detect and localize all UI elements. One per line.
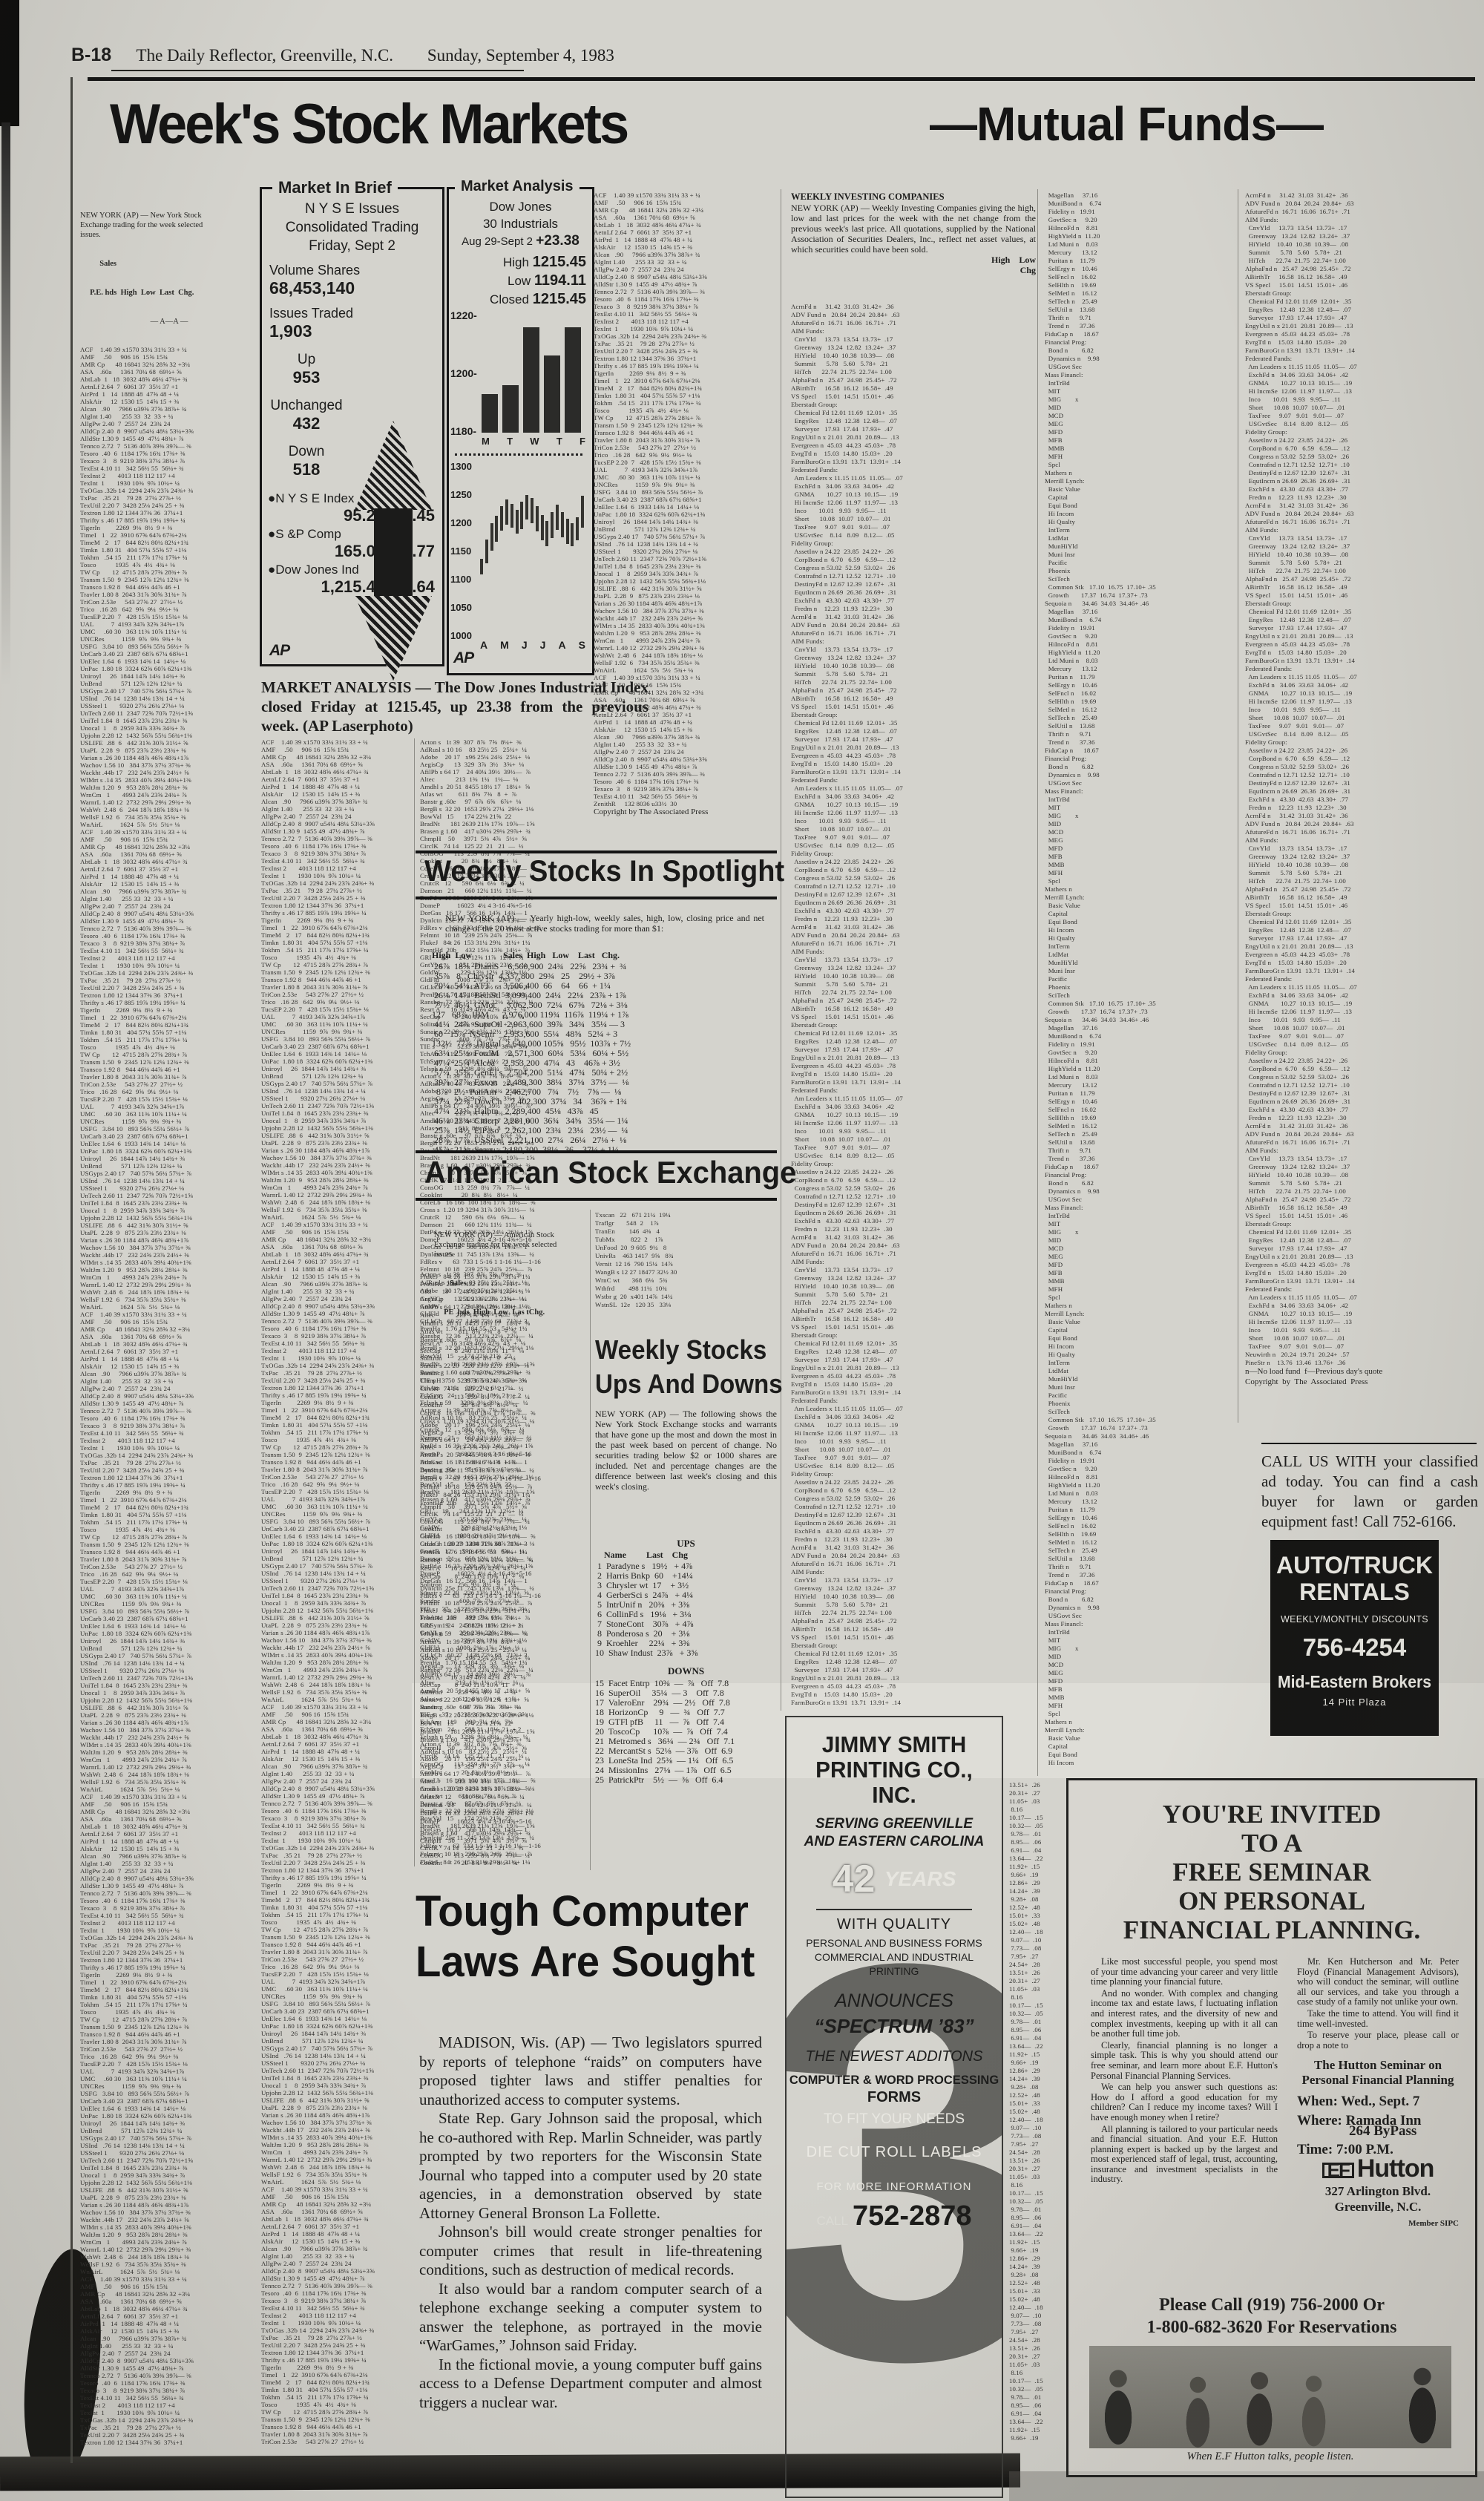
fund-row: SelUtil n 13.68 [1045,722,1235,730]
fund-row: CnvYld 13.73 13.54 13.73+ .17 [791,1576,1034,1584]
quote-row: DatPd s 16 33 2206 26⅞ 24¼ 26⅛+ 1⅝ [420,1442,588,1450]
quote-row: Upjohn 2.28 12 1432 56⅞ 55¼ 56¾+1⅛ [80,1214,258,1222]
fund-row: FiduCap n 18.67 [1045,330,1235,338]
fund-row: EngyRes 12.48 12.38 12.48— .07 [791,417,1034,425]
fund-row: Common Stk 17.10 16.75 17.10+ .35 [1045,583,1235,591]
fund-row: Puritan n 11.79 [1045,1089,1235,1098]
quote-row: AetnLf 2.64 7 6061 37 35½ 37 +1 [261,1258,411,1265]
fund-row: Am Leaders x 11.15 11.05 11.05— .07 [791,1095,1034,1103]
hilo-bar [541,515,544,540]
fund-row: 15.02+ .48 [1009,2108,1067,2116]
fund-row: 10.32— .05 [1009,2197,1067,2206]
fund-row: ExchFd n 34.06 33.63 34.06+ .42 [1245,371,1477,379]
fund-row: Inco 10.01 9.93 9.95— .11 [1245,706,1477,714]
fund-row: AcrnFd n 31.42 31.03 31.42+ .36 [791,1544,1034,1552]
quote-row: UniTel 1.84 8 1645 23⅞ 23¼ 23¾+ ⅜ [80,1199,258,1207]
fund-row: Hi IncmSe 12.06 11.97 11.97— .13 [1245,1318,1477,1326]
fund-row: 9.78— .01 [1009,2206,1067,2214]
quote-row: TW Cp 12 4715 28⅞ 27⅝ 28¾+ ⅞ [261,961,411,968]
fund-row: 7.95+ .27 [1009,1953,1067,1961]
left-page-rule [70,77,73,2463]
quote-row: Amdhl s 20 51 8455 18½ 17 18¼+ ⅝ [420,1320,588,1328]
hutton-seminar-ad: YOU'RE INVITEDTO AFREE SEMINARON PERSONA… [1066,1778,1477,2477]
quote-row: Travler 1.80 8 2043 31⅞ 30⅝ 31¾+ ⅞ [594,436,777,444]
fund-row: CorpBond n 6.70 6.59 6.59— .12 [791,866,1034,874]
week-change: +23.38 [536,233,580,249]
quote-row: Wackht .44b 17 232 24⅝ 23⅞ 24½+ ⅝ [261,1161,411,1169]
spectrum-83: “SPECTRUM ’83” [787,2015,1002,2038]
fund-row: Hi IncmSe 12.06 11.97 11.97— .13 [1245,1008,1477,1016]
fund-row: 14.24+ .39 [1009,2075,1067,2083]
quote-row: TxPac .35 21 79 28 27¼ 27⅞+ ½ [261,887,411,894]
quote-row: TxOGas .32b 14 2294 24⅝ 23⅞ 24⅜+ ⅜ [80,487,258,494]
fund-row: MuniBond n 6.74 [1045,1449,1235,1457]
fund-row: SelMetl n 16.12 [1045,289,1235,298]
quote-row: TexEst 4.10 11 342 56½ 55 56¼+ ¾ [80,947,258,954]
y-tick: 1200- [450,367,477,379]
fund-row: Growth 17.37 16.74 17.37+ .73 [1045,1424,1235,1432]
fund-row: 15.01+ .33 [1009,2100,1067,2108]
quote-row: AdRusl s 10 16 83 25½ 25 25¼+ ¼ [420,1646,588,1654]
fund-row: Trend n 37.36 [1045,1571,1235,1579]
quote-row: TxPac .35 21 79 28 27¼ 27⅞+ ½ [261,1852,411,1859]
quote-row: UtaPL 2.28 9 875 23⅞ 23½ 23¾+ ⅛ [80,1711,258,1719]
quote-row: TimeM 2 17 844 82½ 80¼ 82¼+1¾ [261,2379,411,2386]
fund-row: FiduCap n 18.67 [1045,1579,1235,1587]
fund-row: HiYield 10.40 10.38 10.39— .08 [791,972,1034,980]
quote-row: Wackht .44b 17 232 24⅝ 23⅞ 24½+ ⅝ [594,614,777,622]
fund-row: Contrafnd n 12.71 12.52 12.71+ .10 [791,1193,1034,1201]
quote-row: AetnLf 2.64 7 6061 37 35½ 37 +1 [80,2312,258,2320]
fund-row: AIM Funds: [1245,1147,1477,1155]
quote-row: USFG 3.84 10 893 56⅝ 55¼ 56½+ ⅞ [261,1518,411,1525]
quote-row: Wackht .44b 17 232 24⅝ 23⅞ 24½+ ⅝ [80,1734,258,1741]
quote-row: Telsph n 59 3298 9¾ d8¼ 9⅜— ¼ [420,1630,588,1638]
quote-row: Timkn 1.80 31 404 57¼ 55⅝ 57 +1⅛ [261,1904,411,1911]
fund-row: AfutureFd n 16.71 16.06 16.71+ .71 [1245,208,1477,216]
fund-row: Evergreen n 45.03 44.23 45.03+ .78 [1245,330,1477,338]
quote-row: Tennco 2.72 7 5136 40⅞ 39⅜ 39⅞— ⅜ [261,1317,411,1325]
fund-row: Eberstadt Group: [791,1021,1034,1029]
mf-intro-text: NEW YORK (AP) — Weekly Investing Compani… [791,203,1036,255]
fund-row: HiYield 10.40 10.38 10.39— .08 [1245,1171,1477,1179]
quote-row: UniTel 1.84 8 1645 23⅞ 23¼ 23¾+ ⅜ [261,1592,411,1599]
fund-row: Fredm n 12.23 11.93 12.23+ .30 [1245,1114,1477,1122]
fund-row: VS Specl 15.01 14.51 15.01+ .46 [791,1633,1034,1642]
ad-divider [816,1909,972,1910]
quote-row: Transm 1.50 9 2345 12⅞ 12¼ 12¾+ ⅜ [261,1451,411,1458]
quote-row: WshWt 2.48 6 244 18⅞ 18⅝ 18¾+ ⅛ [261,2163,411,2171]
quote-row: AirPrd 1 14 1888 48 47⅝ 48 + ¼ [594,718,777,726]
fund-row: VS Specl 15.01 14.51 15.01+ .46 [1245,281,1477,289]
quote-row: AMF .50 906 16 15⅝ 15¾ [80,353,258,361]
quote-row: WshWt 2.48 6 244 18⅞ 18⅝ 18¾+ ⅛ [80,1771,258,1778]
quote-row: AlldStr 1.30 9 1455 49 47½ 48¾+ ⅞ [594,281,777,288]
ups-label: UPS [595,1538,777,1549]
quote-row: Unocal 1 8 2959 34⅞ 33⅝ 34¾+ ⅞ [261,2082,411,2089]
quote-row: USLIFE .88 6 442 31⅝ 30⅞ 31½+ ⅝ [594,585,777,592]
quote-row: USInd .76 14 1238 14⅛ 13¾ 14 + ¼ [80,2142,258,2149]
quote-row: Damson 21 660 12¼ 11½ 11¾— ¼ [420,1434,588,1442]
quote-row: Textron 1.80 12 1344 37⅜ 36 37¼+1 [261,1384,411,1392]
quote-row: Tosco 1935 4⅞ 4½ 4¾+ ⅛ [80,1043,258,1051]
fund-row: Hi IncmSe 12.06 11.97 11.97— .13 [791,499,1034,507]
quote-row: BradNt 181 2639 21⅜ 17⅝ 19⅞— 1⅝ [420,820,588,827]
masthead: B-18 The Daily Reflector, Greenville, N.… [71,45,614,66]
quote-row: Transm 1.50 9 2345 12⅞ 12¼ 12¾+ ⅜ [80,1541,258,1548]
quote-row: AlldCp 2.40 8 9907 u54¼ 48¼ 53¼+3⅝ [261,2267,411,2275]
quote-row: Tennco 2.72 7 5136 40⅞ 39⅜ 39⅞— ⅜ [261,1800,411,1807]
quote-row: Trico .16 28 642 9⅝ 9¼ 9½+ ⅛ [261,1963,411,1970]
quote-row: Tokhm .54 15 211 17⅞ 17¼ 17⅝+ ¼ [80,1036,258,1043]
fund-row: CorpBond n 6.70 6.59 6.59— .12 [1245,755,1477,763]
fund-row: IntTrBd [1045,796,1235,804]
fund-row: ExchFd n 43.30 42.63 43.30+ .77 [791,1217,1034,1225]
fund-row: USGvtSec 8.14 8.09 8.12— .05 [791,842,1034,850]
quote-row: WshWt 2.48 6 244 18⅞ 18⅝ 18¾+ ⅛ [80,2253,258,2261]
fund-row: Inco 10.01 9.93 9.95— .11 [791,1127,1034,1135]
fund-row: ADV Fund n 20.84 20.24 20.84+ .63 [791,621,1034,629]
quote-row: TexEst 4.10 11 342 56½ 55 56¼+ ¾ [261,1822,411,1829]
fund-row: HiYield 10.40 10.38 10.39— .08 [791,1593,1034,1601]
fund-row: Financial Prog: [1045,1587,1235,1596]
fund-row: Surveyor 17.93 17.44 17.93+ .47 [791,425,1034,433]
quote-row: AegisCp 13 329 3⅞ 3½ 3⅝+ ⅛ [420,1662,588,1671]
quote-row: Travler 1.80 8 2043 31⅞ 30⅝ 31¾+ ⅞ [80,2038,258,2045]
high-low-close: High 1215.45 Low 1194.11 Closed 1215.45 [490,253,586,309]
quote-row: AirPrd 1 14 1888 48 47⅝ 48 + ¼ [261,1265,411,1273]
quote-row: Wachov 1.56 10 384 37⅞ 37¼ 37¾+ ⅜ [80,1244,258,1251]
fund-row: CnvYld 13.73 13.54 13.73+ .17 [1245,845,1477,853]
fund-row: Surveyor 17.93 17.44 17.93+ .47 [791,1666,1034,1674]
quote-row: WrnCm 1 4993 24⅞ 23⅝ 24¾+ ⅞ [261,2148,411,2156]
fund-row: Chemical Fd 12.01 11.69 12.01+ .35 [791,1029,1034,1038]
weekday-labels: MTWTF [482,436,585,447]
fund-row: Surveyor 17.93 17.44 17.93+ .47 [1245,314,1477,322]
fund-row: 10.32— .05 [1009,2385,1067,2393]
quote-row: AetnLf 2.64 7 6061 37 35½ 37 +1 [261,776,411,783]
quote-row: Tosco 1935 4⅞ 4½ 4¾+ ⅛ [80,2008,258,2016]
quote-row: Brasen g 1.60 417 u30⅛ 29⅛ 29⅞+ ¾ [420,1736,588,1744]
quote-row: UnPac 1.80 18 3324 62⅝ 60⅞ 62¼+1⅜ [80,665,258,672]
quote-row: Txscan 22 671 21¼ 19¼ [595,1211,777,1219]
fund-row: LtdMat [1045,534,1235,543]
fund-row: AIM Funds: [791,327,1034,335]
quote-row: AirPrd 1 14 1888 48 47⅝ 48 + ¼ [594,236,777,243]
fund-row: Muni Insr [1045,551,1235,559]
quote-row: Banstr g .60e 97 6⅞ 6⅝ 6⅞+ ⅛ [420,1703,588,1711]
fund-row: Greenway 13.24 12.82 13.24+ .37 [1245,1163,1477,1171]
fund-row: Neuwirth n 20.24 19.71 20.24+ .57 [1245,1351,1477,1359]
quote-row: TubMx 822 2 1⅞ [595,1236,777,1244]
ap-logo: AP [269,642,289,660]
auto-truck-rentals-ad: AUTO/TRUCK RENTALS WEEKLY/MONTHLY DISCOU… [1270,1540,1439,1736]
quote-row: ASA .60a 1361 70¼ 68 69½+ ⅝ [80,850,258,858]
brief-stats: Volume Shares 68,453,140 Issues Traded 1… [262,263,442,341]
fund-row: MFH [1045,1702,1235,1710]
fund-row: EngyRes 12.48 12.38 12.48— .07 [1245,926,1477,934]
quote-row: AlgInt 1.40 255 33 32 33 + ¼ [261,2252,411,2260]
quote-row: Acton s 1t 39 307 8⅞ 7⅝ 8¼+ ⅜ [420,738,588,746]
quote-row: AirPrd 1 14 1888 48 47⅝ 48 + ¼ [80,390,258,398]
bar [502,385,519,433]
fund-row: MunHiYld [1045,543,1235,551]
quote-row: USSteel 1 9320 27¼ 26¼ 27⅛+ ⅛ [594,548,777,555]
fund-row: ABirthTr 16.58 16.12 16.58+ .49 [1245,583,1477,591]
fund-row: Puritan n 11.79 [1045,257,1235,265]
quote-row: Transm 1.50 9 2345 12⅞ 12¼ 12¾+ ⅜ [80,2023,258,2030]
fund-row: 9.28+ .08 [1009,1895,1067,1904]
fund-row: MCD [1045,412,1235,420]
fund-row: Inco 10.01 9.93 9.95— .11 [1245,1326,1477,1334]
fund-row: SelHlth n 19.69 [1045,698,1235,706]
quote-row: TexEst 4.10 11 342 56½ 55 56¼+ ¾ [261,2304,411,2312]
quote-row: Wackht .44b 17 232 24⅝ 23⅞ 24½+ ⅝ [80,2216,258,2223]
quote-row: UnCarb 3.40 23 2387 68⅞ 67¼ 68⅝+1 [261,1525,411,1533]
quote-row: AMF .50 906 16 15⅝ 15¾ [261,2193,411,2200]
fund-row: ABirthTr 16.58 16.12 16.58+ .49 [791,695,1034,703]
quote-row: ConsOG 113 259 8¼ 7⅞ 7⅞— ¼ [420,1393,588,1401]
quote-row: TexEst 4.10 11 342 56½ 55 56¼+ ¾ [594,793,777,800]
fund-row: EngyRes 12.48 12.38 12.48— .07 [791,1658,1034,1666]
fund-row: DestinyFd n 12.67 12.39 12.67+ .31 [791,1511,1034,1519]
quote-row: WarnrL 1.40 12 2732 29⅞ 29¼ 29¾+ ⅜ [80,1281,258,1288]
fund-row: AcrnFd n 31.42 31.03 31.42+ .36 [1245,502,1477,510]
quote-row: Brasen g 1.60 417 u30⅛ 29⅛ 29⅞+ ¾ [420,827,588,835]
quote-row: USSteel 1 9320 27¼ 26¼ 27⅛+ ⅛ [80,1184,258,1192]
fund-row: Chemical Fd 12.01 11.69 12.01+ .35 [791,1650,1034,1658]
quote-row: USInd .76 14 1238 14⅛ 13¾ 14 + ¼ [261,2052,411,2059]
fund-row: Magellan 37.16 [1045,1440,1235,1449]
fund-row: GNMA 10.27 10.13 10.15— .19 [791,801,1034,809]
fund-row: EvrgTtl n 15.03 14.80 15.03+ .20 [791,1691,1034,1699]
quote-row: WnAirL 1624 5⅞ 5½ 5¾+ ⅛ [261,2178,411,2186]
fund-row: 8.95— .06 [1009,2026,1067,2034]
fund-row: 9.78— .01 [1009,2018,1067,2026]
quote-row: Timkn 1.80 31 404 57¼ 55⅝ 57 +1⅛ [80,1511,258,1518]
fund-row: 13.64— .22 [1009,2418,1067,2426]
quote-row: ACF 1.40 39 x1570 33¼ 31¼ 33 + ¼ [594,674,777,681]
fund-row: Basic Value [1045,485,1235,494]
quote-row: TexInst 2 4013 118 112 117 +4 [594,318,777,325]
fund-row: 15.02+ .48 [1009,2295,1067,2304]
fund-row: AlphaFnd n 25.47 24.98 25.45+ .72 [1245,265,1477,273]
quote-row: Timkn 1.80 31 404 57¼ 55⅝ 57 +1⅛ [261,2386,411,2393]
quote-row: AdRusl s 10 16 83 25½ 25 25¼+ ¼ [420,746,588,753]
quote-row: Travler 1.80 8 2043 31⅞ 30⅝ 31¾+ ⅞ [261,1948,411,1956]
fund-row: 9.78— .01 [1009,2393,1067,2402]
quote-row: Texaco 3 8 9219 38⅜ 37¼ 38¼+ ⅞ [261,1815,411,1822]
quote-row: TimeM 2 17 844 82½ 80¼ 82¼+1¾ [80,1986,258,1993]
quote-row: Timkn 1.80 31 404 57¼ 55⅝ 57 +1⅛ [80,1029,258,1036]
fund-row: CorpBond n 6.70 6.59 6.59— .12 [1245,445,1477,453]
quote-row: SecCap 8 240 11¼ 10⅝ 11 + ⅛ [420,1573,588,1581]
fund-row: AcrnFd n 31.42 31.03 31.42+ .36 [1245,191,1477,200]
quote-row: Wackht .44b 17 232 24⅝ 23⅞ 24½+ ⅝ [80,769,258,776]
fund-row: SelHlth n 19.69 [1045,281,1235,289]
quote-row: AlskAir 12 1530 15 14⅝ 15 + ⅜ [261,2238,411,2245]
fund-row: Ltd Muni n 8.03 [1045,657,1235,665]
fund-row: Merrill Lynch: [1045,477,1235,485]
fund-row: HiTch 22.74 21.75 22.74+ 1.00 [791,989,1034,997]
quote-row: BowVal 15 174 22⅛ 21⅝ 22 [420,1352,588,1360]
ad-line: WITH QUALITY [787,1916,1002,1933]
fund-row: Fidelity Group: [1245,738,1477,747]
bar [565,327,581,433]
fund-row: Hi Incom [1045,926,1235,934]
quote-row: UNCRes 1159 9⅞ 9⅜ 9¾+ ⅜ [80,2082,258,2090]
banner-rule [416,1150,777,1153]
fund-row: MFH [1045,1285,1235,1294]
fund-row: Financial Prog: [1045,755,1235,763]
quote-row: Transm 1.50 9 2345 12⅞ 12¼ 12¾+ ⅜ [594,422,777,429]
fund-row: ExchFd n 34.06 33.63 34.06+ .42 [791,1413,1034,1421]
quote-row: AirPrd 1 14 1888 48 47⅝ 48 + ¼ [261,783,411,790]
quote-row: AllgPw 2.40 7 2557 24 23¾ 24 [261,1777,411,1785]
fund-row: AcrnFd n 31.42 31.03 31.42+ .36 [791,303,1034,311]
y-tick: 1300 [450,461,472,472]
fund-row: Growth 17.37 16.74 17.37+ .73 [1045,591,1235,600]
quote-row: AetnLf 2.64 7 6061 37 35½ 37 +1 [80,1348,258,1355]
fund-row: USGovt Sec [1045,779,1235,787]
fund-row: 8.16 [1009,1993,1067,2002]
quote-row: TimeI 1 22 3910 67⅝ 64⅞ 67⅜+2⅛ [80,1979,258,1986]
fund-row: EvrgTtl n 15.03 14.80 15.03+ .20 [1245,338,1477,347]
fund-row: Ltd Muni n 8.03 [1045,1073,1235,1081]
fund-row: Fidelity Group: [791,850,1034,858]
fund-row: Basic Value [1045,1318,1235,1326]
quote-row: USFG 3.84 10 893 56⅝ 55¼ 56½+ ⅞ [594,488,777,496]
jimmy-smith-printing-ad: 3 JIMMY SMITH PRINTING CO., INC. SERVING… [785,1716,1003,2498]
quote-row: USLIFE .88 6 442 31⅝ 30⅞ 31½+ ⅝ [80,1704,258,1711]
quote-row: Unocal 1 8 2959 34⅞ 33⅝ 34¾+ ⅞ [80,2171,258,2179]
quote-row: Unocal 1 8 2959 34⅞ 33⅝ 34¾+ ⅞ [261,1117,411,1124]
fund-row: Merrill Lynch: [1045,1310,1235,1318]
quote-row: AMF .50 906 16 15⅝ 15¾ [261,746,411,753]
quote-row: Thrifty s .46 17 885 19⅞ 19¼ 19⅝+ ¼ [261,909,411,917]
quote-row: AMF .50 906 16 15⅝ 15¾ [80,1318,258,1325]
quote-row: UAL 7 4193 34⅞ 32⅝ 34⅝+1⅞ [80,1103,258,1110]
fund-row: MMB [1045,1694,1235,1702]
quote-row: TimeI 1 22 3910 67⅝ 64⅞ 67⅜+2⅛ [80,1496,258,1504]
fund-row: Greenway 13.24 12.82 13.24+ .37 [791,654,1034,662]
quote-row: Trico .16 28 642 9⅝ 9¼ 9½+ ⅛ [80,1570,258,1578]
seminar-when: When: Wed., Sept. 7 [1297,2097,1459,2107]
quote-row: TranEn 146 4⅜ 4 [595,1227,777,1236]
fund-row: Short 10.08 10.07 10.07— .01 [1245,714,1477,722]
quote-row: ASA .60a 1361 70¼ 68 69½+ ⅝ [261,761,411,768]
quote-row: USGyps 2.40 17 740 57⅜ 56¼ 57¼+ ⅞ [261,1080,411,1087]
quote-row: TxOGas .32b 14 2294 24⅝ 23⅞ 24⅜+ ⅜ [261,1362,411,1369]
fund-row: MIT [1045,804,1235,812]
hilo-bar [520,502,523,529]
quote-row: Ransbg 72 36 513 22¾ 22⅛ 22¼— ¼ [420,1556,588,1564]
fund-row: Evergreen n 45.03 44.23 45.03+ .78 [791,1682,1034,1691]
fund-row: USGovt Sec [1045,1612,1235,1620]
fund-row: Eberstadt Group: [1245,289,1477,298]
quote-row: TxOGas .32b 14 2294 24⅝ 23⅞ 24⅜+ ⅜ [261,1844,411,1852]
quote-row: TxOGas .32b 14 2294 24⅝ 23⅞ 24⅜+ ⅜ [261,2327,411,2334]
quote-row: UnPac 1.80 18 3324 62⅝ 60⅞ 62¼+1⅜ [80,1147,258,1155]
fund-row: Phoenix [1045,1400,1235,1408]
fund-row: Summit 5.78 5.60 5.78+ .21 [1245,1179,1477,1187]
quote-row: Alcan .90 7966 u39⅝ 37⅝ 38⅞+ ¾ [261,2245,411,2252]
quote-row: USGyps 2.40 17 740 57⅜ 56¼ 57¼+ ⅞ [594,533,777,540]
fund-row: HiYield 10.40 10.38 10.39— .08 [791,662,1034,670]
fund-row: Equi Bond [1045,502,1235,510]
fund-row: Evergreen n 45.03 44.23 45.03+ .78 [791,442,1034,450]
quote-row: Thrifty s .46 17 885 19⅞ 19¼ 19⅝+ ¼ [80,1964,258,1971]
quote-row: AlskAir 12 1530 15 14⅝ 15 + ⅜ [80,880,258,888]
fund-row: Federated Funds: [791,466,1034,474]
quote-row: Wachov 1.56 10 384 37⅞ 37¼ 37¾+ ⅜ [80,2209,258,2216]
fund-row: Am Leaders x 11.15 11.05 11.05— .07 [1245,1294,1477,1302]
quote-row: Tosco 1935 4⅞ 4½ 4¾+ ⅛ [80,1526,258,1533]
fund-row: HiYield 10.40 10.38 10.39— .08 [1245,861,1477,869]
quote-row: AirPrd 1 14 1888 48 47⅝ 48 + ¼ [80,1838,258,1845]
fund-row: AssetInv n 24.22 23.85 24.22+ .26 [1245,1057,1477,1065]
quote-row: TW Cp 12 4715 28⅞ 27⅝ 28¾+ ⅞ [80,1051,258,1058]
fund-row: Evergreen n 45.03 44.23 45.03+ .78 [791,1062,1034,1070]
quote-row: TexInst 2 4013 118 112 117 +4 [261,1829,411,1837]
fund-row: SciTech [1045,1408,1235,1416]
fund-row: USGvtSec 8.14 8.09 8.12— .05 [791,1462,1034,1470]
fund-row: Summit 5.78 5.60 5.78+ .21 [791,980,1034,989]
quote-row: TimeI 1 22 3910 67⅝ 64⅞ 67⅜+2⅛ [261,1889,411,1896]
fund-row: Bond n 6.82 [1045,763,1235,771]
quote-row: Upjohn 2.28 12 1432 56⅞ 55¼ 56¾+1⅛ [261,2089,411,2097]
fund-row: Evergreen n 45.03 44.23 45.03+ .78 [1245,951,1477,959]
quote-row: WellsF 1.92 6 734 35⅞ 35¼ 35¾+ ⅜ [261,1206,411,1213]
quote-row: CirclK 74 14 125 22 21 21 — ½ [420,1385,588,1393]
quote-row: AMR Cp 48 16841 32¼ 28⅝ 32 +3¼ [80,361,258,368]
dotted-divider [455,453,582,456]
fund-row: MFD [1045,1677,1235,1685]
fund-row: AIM Funds: [1245,216,1477,224]
quote-row: Trico .16 28 642 9⅝ 9¼ 9½+ ⅛ [80,606,258,613]
fund-row: GovtSec n 9.20 [1045,216,1235,224]
quote-row: WaltJm 1.20 9 953 28⅞ 28¼ 28¾+ ⅜ [261,2141,411,2148]
quote-row: Varian s .26 30 1184 48⅞ 46⅝ 48¾+1⅞ [261,1629,411,1636]
fund-row: 10.17— .15 [1009,1814,1067,1822]
fund-row: Evergreen n 45.03 44.23 45.03+ .78 [791,752,1034,760]
quote-row: AMR Cp 48 16841 32¼ 28⅝ 32 +3¼ [80,843,258,850]
fund-row: Pacific [1045,1392,1235,1400]
fund-row: Fidelity n 19.91 [1045,1457,1235,1465]
quote-row: AlldStr 1.30 9 1455 49 47½ 48¾+ ⅞ [80,2364,258,2372]
fund-row: MFD [1045,1261,1235,1269]
quote-row: Dynlctn 25e 11 745 13⅞ 13¼ 13⅝— ¼ [420,1466,588,1475]
quote-row: GRI 19 243 12⅝ 11⅞ 12¼+ ¼ [420,1507,588,1515]
classified-rule [1261,1443,1477,1444]
quote-row: Trico .16 28 642 9⅝ 9¼ 9½+ ⅛ [261,998,411,1006]
quote-row: AMF .50 906 16 15⅝ 15¾ [261,1711,411,1718]
fund-row: DestinyFd n 12.67 12.39 12.67+ .31 [1245,469,1477,477]
fund-row: EqutIncm n 26.69 26.36 26.69+ .31 [1245,477,1477,485]
fund-row: HiIncoFd n 8.81 [1045,640,1235,649]
fund-row: 24.54+ .28 [1009,2148,1067,2157]
fund-row: 8.16 [1009,2369,1067,2377]
quote-row: Textron 1.80 12 1344 37⅜ 36 37¼+1 [261,2349,411,2356]
six-month-hilo-chart [480,465,585,636]
quote-row: Upjohn 2.28 12 1432 56⅞ 55¼ 56¾+1⅛ [261,1607,411,1614]
quote-row: AMR Cp 48 16841 32¼ 28⅝ 32 +3¼ [261,1236,411,1243]
fund-row: AlphaFnd n 25.47 24.98 25.45+ .72 [1245,885,1477,894]
fund-row: EngyUtil n x 21.01 20.81 20.89— .13 [791,1054,1034,1062]
quote-row: TexUtil 2.20 7 3428 25⅛ 24⅝ 25 + ⅜ [80,502,258,509]
quote-row: Alcan .90 7966 u39⅝ 37⅝ 38⅞+ ¾ [261,1763,411,1770]
fund-row: EvrgTtl n 15.03 14.80 15.03+ .20 [1245,959,1477,967]
